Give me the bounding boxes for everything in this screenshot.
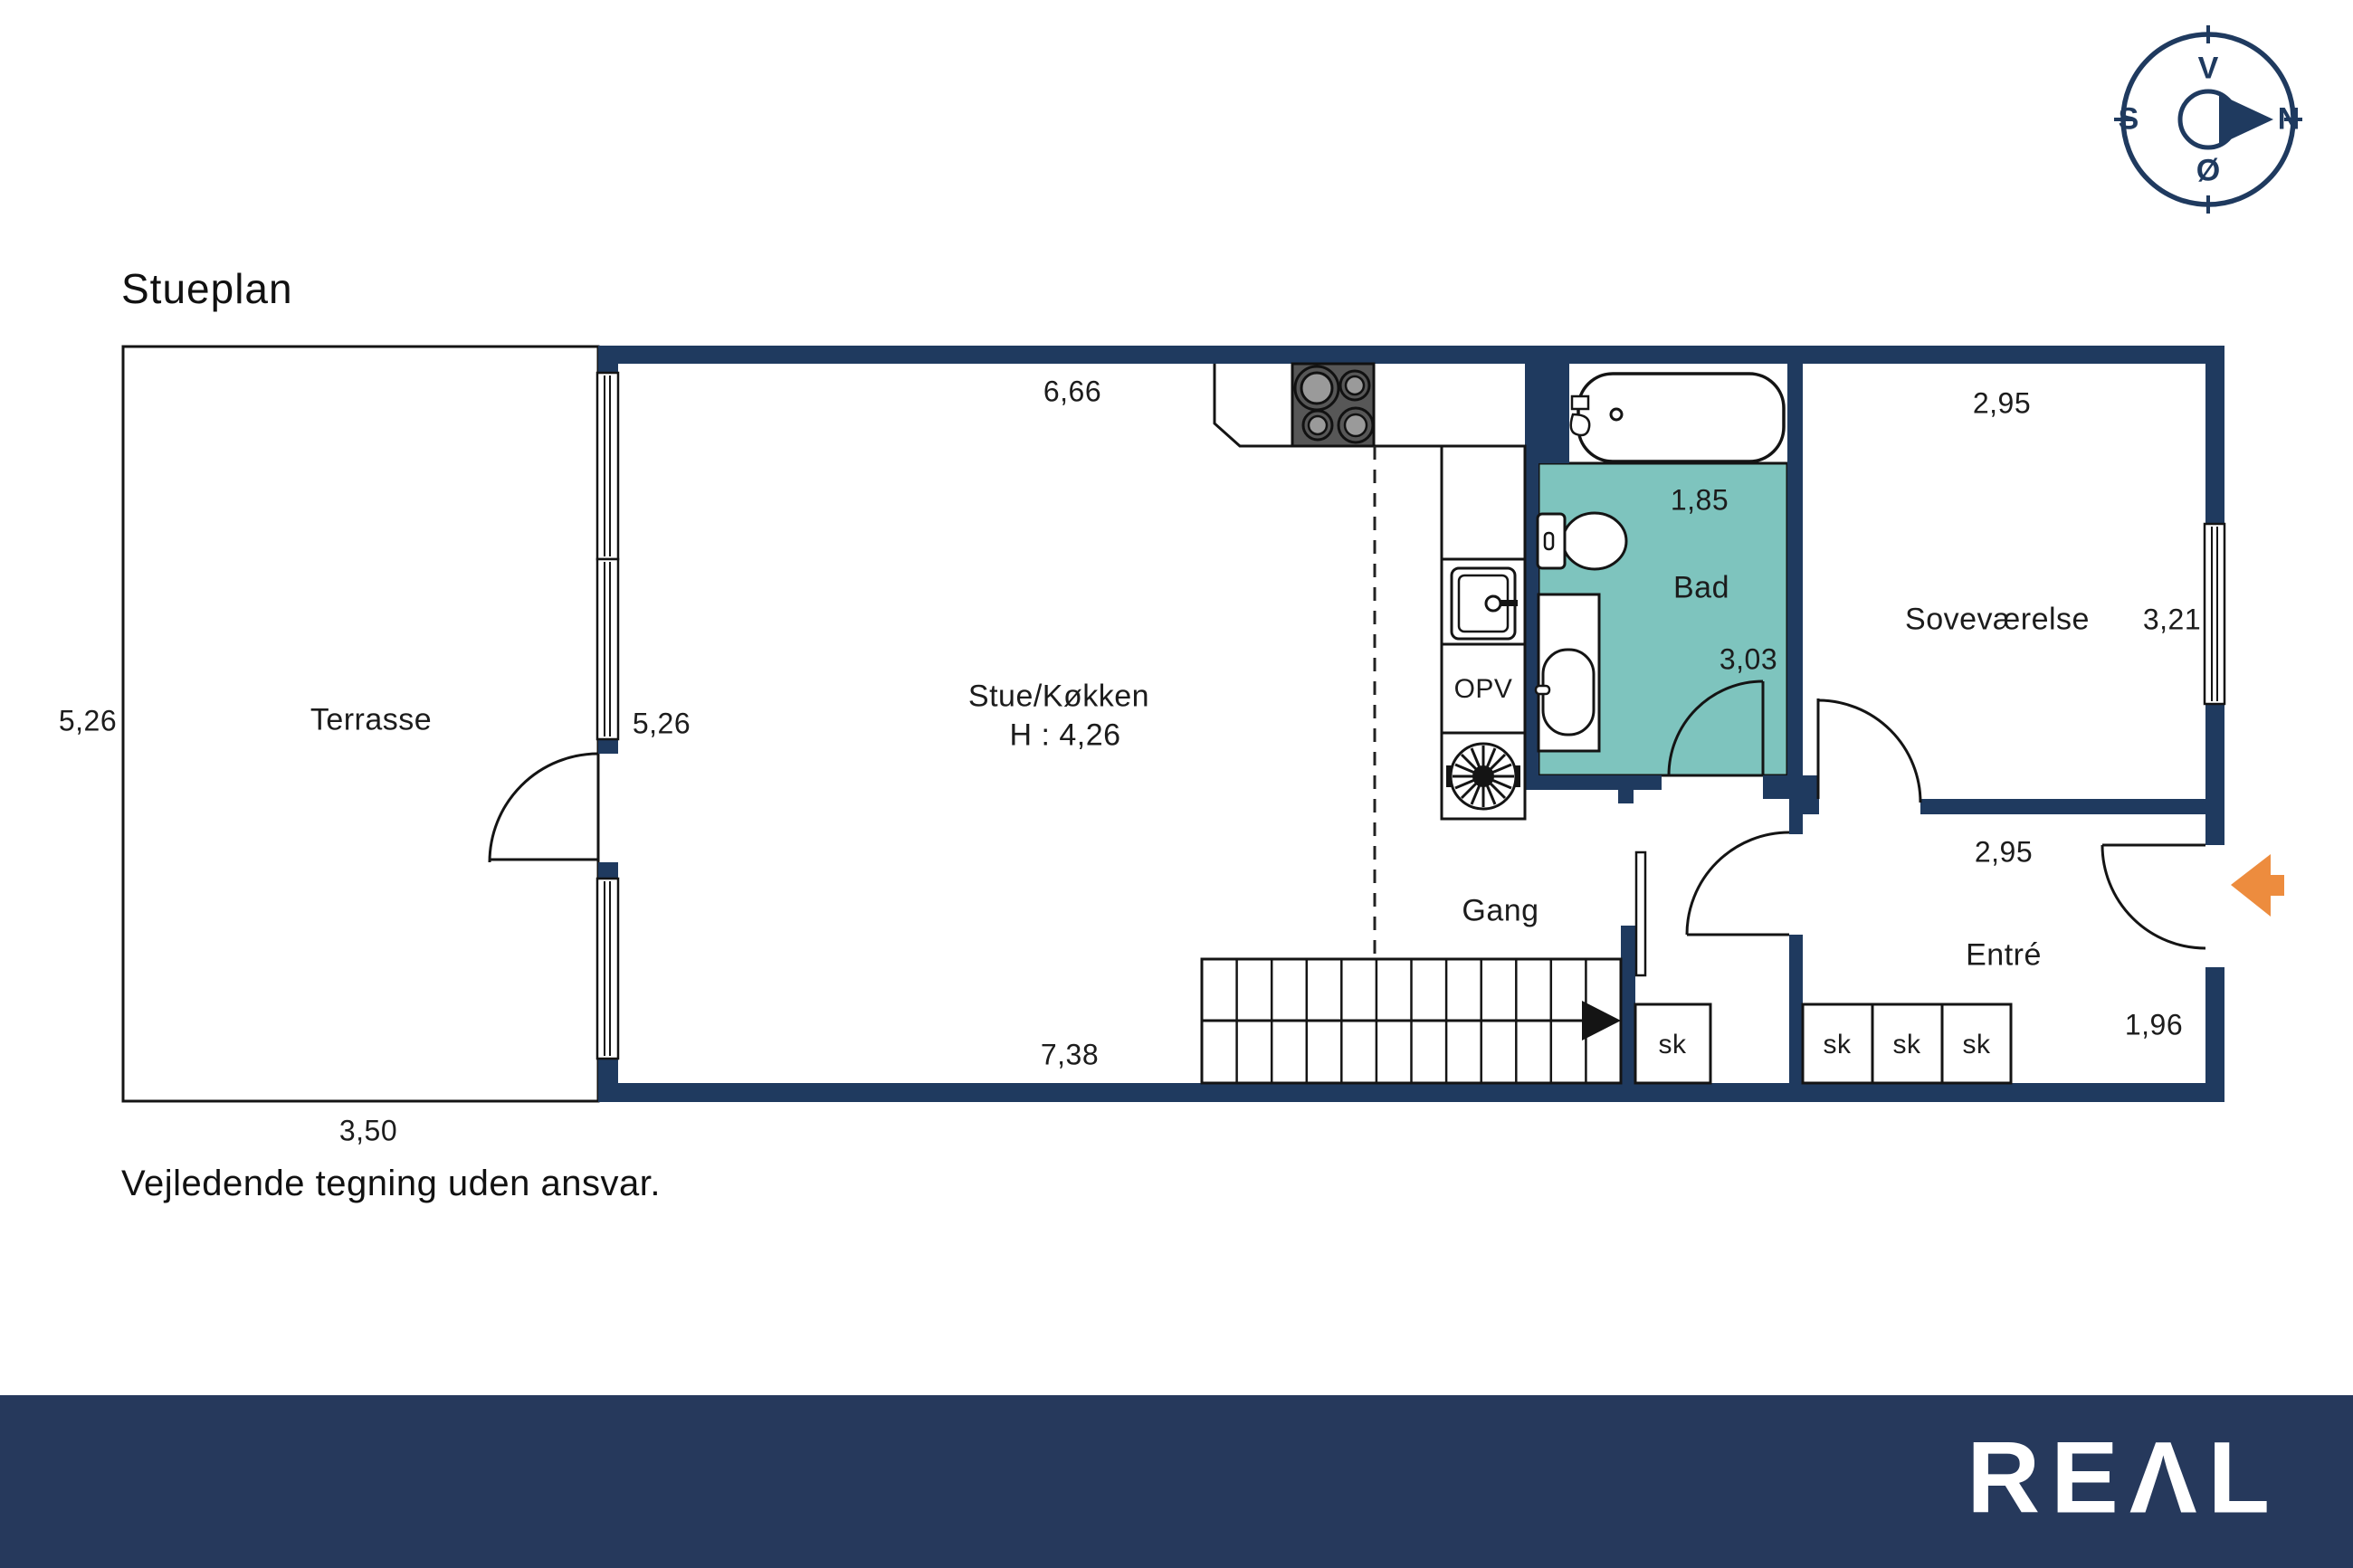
compass-label-s: S bbox=[2119, 102, 2139, 138]
closet-label: sk bbox=[1893, 1030, 1921, 1060]
wall-west bbox=[598, 739, 618, 754]
room-label-bad: Bad bbox=[1673, 571, 1729, 606]
disclaimer-text: Vejledende tegning uden ansvar. bbox=[121, 1164, 661, 1204]
dim-bad-top: 1,85 bbox=[1671, 484, 1729, 518]
dim-entre-side: 1,96 bbox=[2125, 1009, 2183, 1042]
wall-west bbox=[598, 346, 618, 373]
staircase bbox=[1202, 959, 1621, 1083]
wall-south bbox=[598, 1083, 2224, 1102]
entry-arrow-icon bbox=[2231, 854, 2284, 917]
terrace-door bbox=[489, 754, 598, 862]
dim-sove-side: 3,21 bbox=[2143, 603, 2201, 637]
dim-terrasse-bottom: 3,50 bbox=[339, 1115, 397, 1148]
window-west-lower bbox=[597, 879, 618, 1059]
floorplan-drawing bbox=[0, 0, 2353, 1568]
ceiling-height-label: H : 4,26 bbox=[1009, 718, 1120, 754]
wall-west bbox=[598, 1059, 618, 1102]
footer-bar: REΛL bbox=[0, 1395, 2353, 1568]
closet-label: sk bbox=[1824, 1030, 1852, 1060]
wall-north bbox=[598, 346, 2224, 364]
compass-label-o: Ø bbox=[2196, 154, 2220, 189]
wall-kitchen-bath bbox=[1525, 463, 1538, 775]
washbasin-icon bbox=[1536, 594, 1599, 751]
window-west-upper bbox=[597, 373, 618, 559]
wall-east bbox=[2205, 967, 2224, 1102]
room-label-stue-kokken: Stue/Køkken bbox=[968, 679, 1149, 715]
hall-entry-door bbox=[1687, 832, 1789, 935]
wall-east bbox=[2205, 704, 2224, 845]
dim-stue-bottom: 7,38 bbox=[1041, 1039, 1099, 1072]
wall-bath-south bbox=[1525, 775, 1662, 790]
page-title: Stueplan bbox=[121, 264, 293, 313]
kitchen-sink-icon bbox=[1452, 568, 1518, 639]
open-door-leaf bbox=[1636, 852, 1645, 975]
dim-entre-top: 2,95 bbox=[1975, 836, 2033, 870]
wall-bedroom-south bbox=[1798, 799, 1819, 814]
room-label-gang: Gang bbox=[1462, 894, 1538, 929]
dishwasher-label: OPV bbox=[1454, 674, 1513, 705]
bedroom-door bbox=[1818, 698, 1920, 803]
real-logo: REΛL bbox=[1967, 1427, 2281, 1528]
wall-kitchen-bath bbox=[1525, 364, 1569, 463]
front-door bbox=[2102, 845, 2205, 948]
dim-sove-top: 2,95 bbox=[1973, 387, 2031, 421]
wall-west bbox=[598, 862, 618, 879]
closet-label: sk bbox=[1659, 1030, 1687, 1060]
room-label-entre: Entré bbox=[1966, 938, 2042, 974]
room-label-sovevaerelse: Soveværelse bbox=[1905, 603, 2090, 638]
room-label-terrasse: Terrasse bbox=[310, 703, 432, 738]
dim-bad-side: 3,03 bbox=[1719, 643, 1777, 677]
floorplan-sheet: Stueplan Terrasse 5,26 3,50 Stue/Køkken … bbox=[0, 0, 2353, 1568]
wall-stairs-stub bbox=[1618, 787, 1634, 803]
compass-label-n: N bbox=[2278, 102, 2301, 138]
doors bbox=[489, 681, 2205, 975]
wall-bedroom-south bbox=[1920, 799, 2205, 814]
stove-icon bbox=[1292, 364, 1374, 446]
wall-hall-entry bbox=[1789, 935, 1803, 1083]
compass-label-v: V bbox=[2198, 52, 2219, 87]
wall-bath-bedroom bbox=[1787, 364, 1803, 790]
dim-terrasse-side: 5,26 bbox=[59, 705, 117, 738]
window-east-bedroom bbox=[2205, 524, 2224, 704]
bathtub-icon bbox=[1571, 374, 1784, 461]
window-west-middle bbox=[597, 559, 618, 739]
real-logo-text: REΛL bbox=[1967, 1421, 2281, 1534]
wall-east bbox=[2205, 346, 2224, 524]
wall-stairs bbox=[1621, 926, 1635, 1083]
toilet-icon bbox=[1538, 513, 1626, 569]
closet-label: sk bbox=[1963, 1030, 1991, 1060]
dim-stue-top: 6,66 bbox=[1043, 375, 1101, 409]
dim-stue-side: 5,26 bbox=[633, 708, 691, 741]
